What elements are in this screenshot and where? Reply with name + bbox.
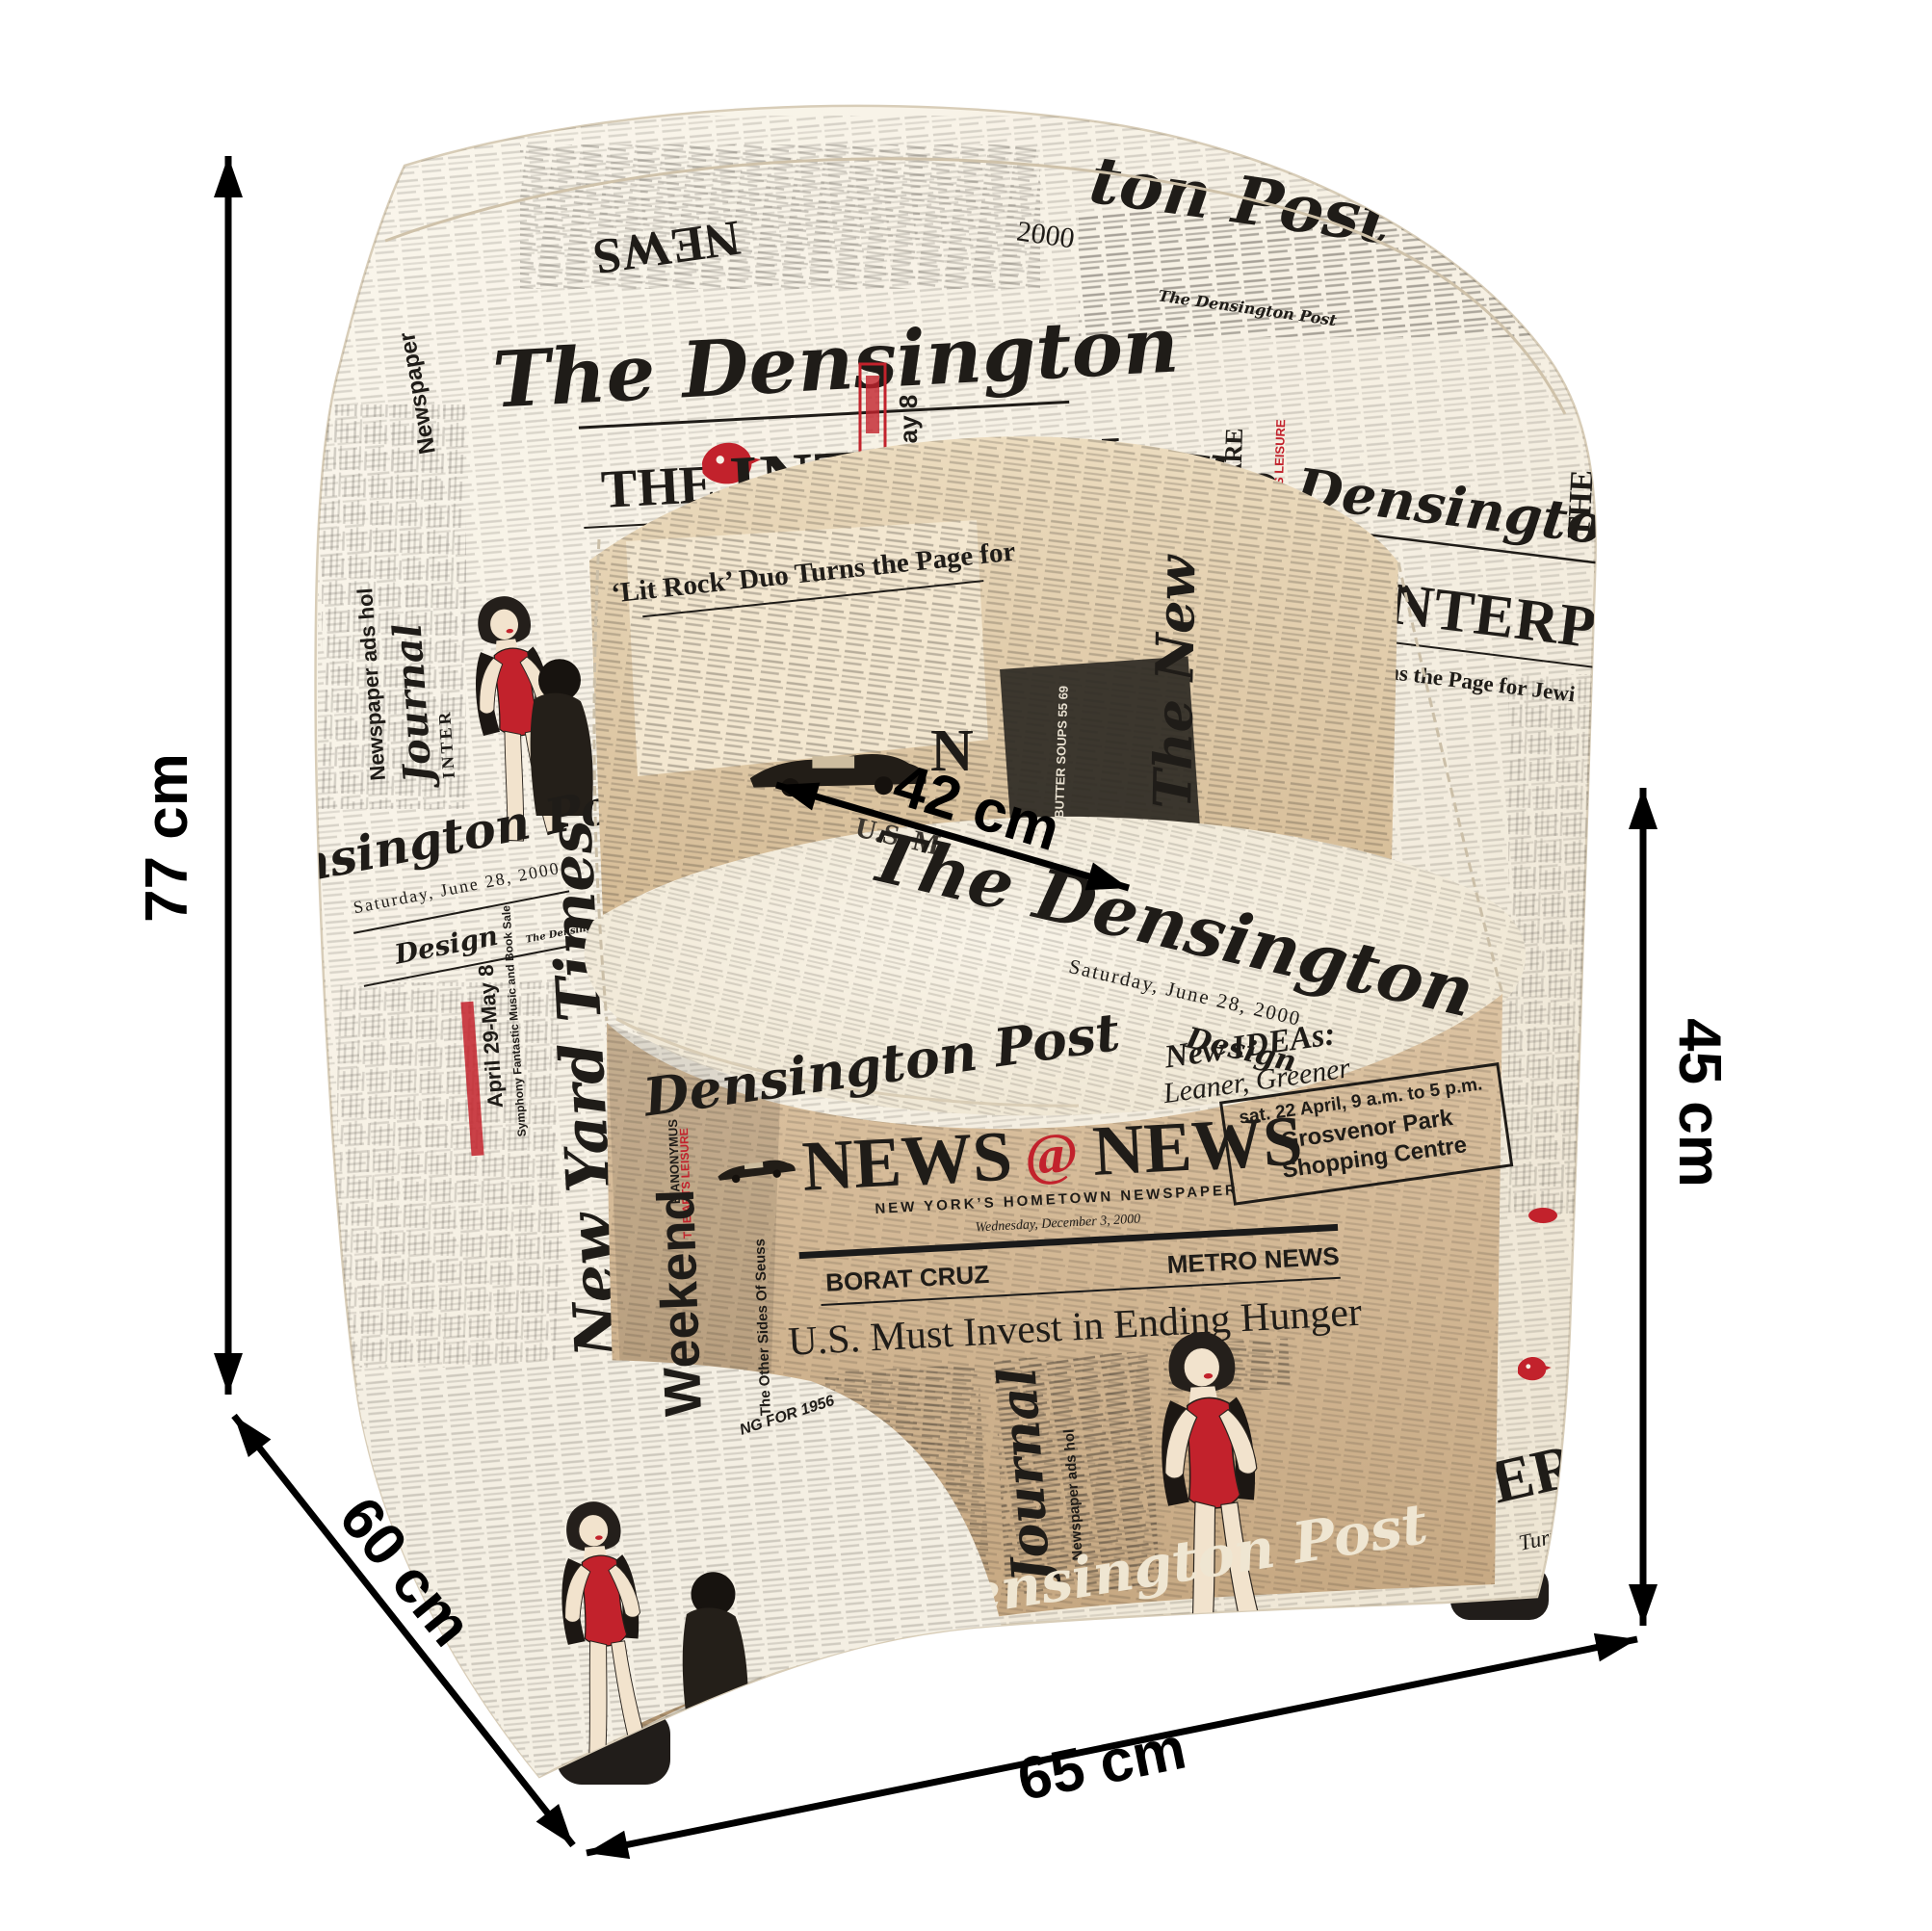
- height-dimension-label: 77 cm: [134, 753, 200, 923]
- fabric-text-at-sign: @: [1023, 1121, 1080, 1187]
- fabric-text-the-new: The New: [1141, 553, 1208, 809]
- newsprint-texture: [337, 982, 559, 1368]
- fabric-text-news-left: NEWS: [800, 1116, 1014, 1206]
- red-ad-strip: [866, 376, 879, 433]
- armchair-illustration: NEWS Newspaper The Densington THE INTERP…: [217, 106, 1740, 1791]
- fabric-text-weekend-left: Weekend: [647, 1188, 713, 1418]
- red-lips-motif: [1528, 1208, 1557, 1223]
- armchair-dimension-diagram: NEWS Newspaper The Densington THE INTERP…: [0, 0, 1932, 1931]
- product-dimension-image: NEWS Newspaper The Densington THE INTERP…: [0, 0, 1932, 1931]
- fabric-print: NEWS Newspaper The Densington THE INTERP…: [217, 116, 1740, 1791]
- seat-height-dimension-label: 45 cm: [1666, 1018, 1733, 1187]
